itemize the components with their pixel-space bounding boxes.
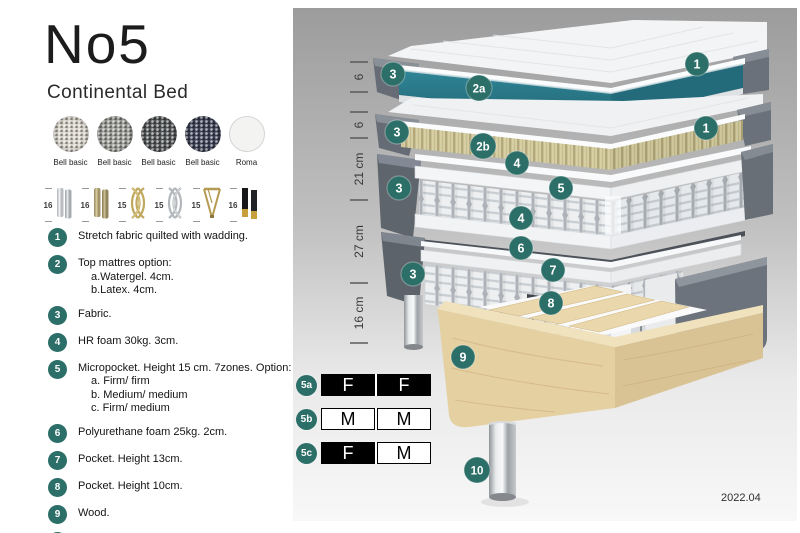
firmness-badge: 5b <box>296 409 317 430</box>
fabric-swatch-circle <box>229 116 265 152</box>
product-title: No5 <box>44 12 151 76</box>
leg-option: 15 <box>117 184 154 226</box>
fabric-swatch-label: Bell basicMCD32 <box>97 158 131 168</box>
legend-main-line: Micropocket. Height 15 cm. 7zones. Optio… <box>78 362 298 376</box>
fabric-swatch-circle <box>97 116 133 152</box>
firmness-row-5a: 5aFF <box>296 374 431 396</box>
firmness-badge: 5a <box>296 375 317 396</box>
callout-badge-1: 1 <box>694 116 718 140</box>
legend-number-badge: 8 <box>48 478 67 497</box>
fabric-swatches: Bell basicMCD36Bell basicMCD32Bell basic… <box>50 116 267 168</box>
product-subtitle: Continental Bed <box>47 82 188 104</box>
fabric-swatch-circle <box>53 116 89 152</box>
callout-badge-8: 8 <box>539 291 563 315</box>
legend-item-text: Pocket. Height 10cm. <box>78 480 298 497</box>
fabric-swatch: Bell basicMCD36 <box>50 116 91 168</box>
callout-badge-3: 3 <box>381 62 405 86</box>
callout-badge-4: 4 <box>509 206 533 230</box>
legend-main-line: Pocket. Height 13cm. <box>78 453 298 467</box>
legend-item: 3Fabric. <box>48 308 298 325</box>
leg-height-value: 16 <box>81 201 90 210</box>
svg-text:16 cm: 16 cm <box>352 297 366 330</box>
legend-item-text: Polyurethane foam 25kg. 2cm. <box>78 426 298 443</box>
callout-badge-1: 1 <box>685 52 709 76</box>
back-leg <box>404 295 423 350</box>
callout-badge-3: 3 <box>385 120 409 144</box>
firmness-cell: F <box>321 374 375 396</box>
legend-item: 7Pocket. Height 13cm. <box>48 453 298 470</box>
callout-badge-5: 5 <box>549 176 573 200</box>
legend-item: 9Wood. <box>48 507 298 524</box>
leg-option: 16 <box>228 184 265 226</box>
callout-badge-2b: 2b <box>470 133 496 159</box>
fabric-swatch-circle <box>141 116 177 152</box>
diagram-panel: 6621 cm27 cm16 cm 32a132b145346738910 5a… <box>293 8 797 521</box>
leg-option: 15 <box>191 184 228 226</box>
bed-infographic: No5 Continental Bed Bell basicMCD36Bell … <box>0 0 800 533</box>
legend-sub-line: a. Firm/ firm <box>78 375 298 389</box>
svg-text:2b: 2b <box>476 141 489 153</box>
legend-number-badge: 9 <box>48 505 67 524</box>
legend-main-line: HR foam 30kg. 3cm. <box>78 335 298 349</box>
firmness-row-5c: 5cFM <box>296 442 431 464</box>
svg-text:4: 4 <box>514 156 521 170</box>
callout-badge-3: 3 <box>401 262 425 286</box>
legend-item-text: Pocket. Height 13cm. <box>78 453 298 470</box>
svg-text:3: 3 <box>390 67 397 81</box>
firmness-cells: FM <box>321 442 431 464</box>
legend-sub-line: b.Latex. 4cm. <box>78 284 298 298</box>
svg-text:7: 7 <box>550 263 557 277</box>
firmness-cell: M <box>321 408 375 430</box>
fabric-swatch-label: Bell basicMCD36 <box>53 158 87 168</box>
firmness-cells: MM <box>321 408 431 430</box>
gold-hairpin-leg-icon <box>202 187 222 224</box>
legend-item: 4HR foam 30kg. 3cm. <box>48 335 298 352</box>
legend-number-badge: 3 <box>48 306 67 325</box>
firmness-badge: 5c <box>296 443 317 464</box>
svg-text:6: 6 <box>518 241 525 255</box>
leg-height-value: 15 <box>192 201 201 210</box>
svg-text:27 cm: 27 cm <box>352 225 366 258</box>
callout-badge-7: 7 <box>541 258 565 282</box>
legend-item-text: Micropocket. Height 15 cm. 7zones. Optio… <box>78 362 298 416</box>
firmness-cell: F <box>377 374 431 396</box>
legend-item: 8Pocket. Height 10cm. <box>48 480 298 497</box>
legend-number-badge: 6 <box>48 424 67 443</box>
callout-badge-2a: 2a <box>466 75 492 101</box>
leg-height-ruler: 16 <box>43 188 53 222</box>
leg-height-value: 16 <box>44 201 53 210</box>
leg-height-ruler: 16 <box>80 188 90 222</box>
firmness-cell: M <box>377 408 431 430</box>
fabric-swatch: Bell basicMCD43 <box>138 116 179 168</box>
svg-text:8: 8 <box>548 296 555 310</box>
svg-text:4: 4 <box>518 211 525 225</box>
legend-number-badge: 1 <box>48 228 67 247</box>
measurement-ruler: 6621 cm27 cm16 cm <box>350 62 368 343</box>
leg-height-ruler: 15 <box>117 188 127 222</box>
svg-text:3: 3 <box>410 267 417 281</box>
leg-height-value: 15 <box>118 201 127 210</box>
legend-main-line: Top mattres option: <box>78 257 298 271</box>
leg-height-ruler: 16 <box>228 188 238 222</box>
legend-number-badge: 4 <box>48 333 67 352</box>
svg-text:2a: 2a <box>473 83 486 95</box>
callout-badge-4: 4 <box>505 151 529 175</box>
svg-text:3: 3 <box>396 181 403 195</box>
version-label: 2022.04 <box>721 492 761 504</box>
leg-option: 16 <box>80 184 117 226</box>
callout-badge-3: 3 <box>387 176 411 200</box>
firmness-cell: M <box>377 442 431 464</box>
legend-list: 1Stretch fabric quilted with wadding.2To… <box>48 230 298 533</box>
fabric-swatch: Bell basicMCD74 <box>182 116 223 168</box>
legend-item-text: Top mattres option:a.Watergel. 4cm.b.Lat… <box>78 257 298 298</box>
legend-item-text: Fabric. <box>78 308 298 325</box>
chrome-cylinder-leg-icon <box>54 187 74 224</box>
fabric-swatch: Romastretch fabric <box>226 116 267 168</box>
leg-height-ruler: 15 <box>191 188 201 222</box>
firmness-row-5b: 5bMM <box>296 408 431 430</box>
legend-number-badge: 7 <box>48 451 67 470</box>
gold-twisted-leg-icon <box>128 187 148 224</box>
callout-badge-9: 9 <box>451 345 475 369</box>
legend-sub-line: b. Medium/ medium <box>78 389 298 403</box>
svg-text:6: 6 <box>352 121 366 128</box>
svg-text:21 cm: 21 cm <box>352 153 366 186</box>
callout-badge-10: 10 <box>464 457 490 483</box>
legend-sub-line: a.Watergel. 4cm. <box>78 271 298 285</box>
legend-main-line: Polyurethane foam 25kg. 2cm. <box>78 426 298 440</box>
legend-item: 6Polyurethane foam 25kg. 2cm. <box>48 426 298 443</box>
fabric-swatch: Bell basicMCD32 <box>94 116 135 168</box>
legend-item: 2Top mattres option:a.Watergel. 4cm.b.La… <box>48 257 298 298</box>
svg-text:1: 1 <box>703 121 710 135</box>
legend-item: 5Micropocket. Height 15 cm. 7zones. Opti… <box>48 362 298 416</box>
svg-text:5: 5 <box>558 181 565 195</box>
svg-text:10: 10 <box>471 465 484 477</box>
svg-text:1: 1 <box>694 57 701 71</box>
fabric-swatch-label: Bell basicMCD74 <box>185 158 219 168</box>
leg-option: 15 <box>154 184 191 226</box>
svg-text:6: 6 <box>352 73 366 80</box>
legend-item-text: Stretch fabric quilted with wadding. <box>78 230 298 247</box>
brass-cylinder-leg-icon <box>91 187 111 224</box>
leg-height-ruler: 15 <box>154 188 164 222</box>
legend-item-text: Wood. <box>78 507 298 524</box>
leg-option: 16 <box>43 184 80 226</box>
callout-badge-6: 6 <box>509 236 533 260</box>
firmness-cell: F <box>321 442 375 464</box>
legend-item-text: HR foam 30kg. 3cm. <box>78 335 298 352</box>
legend-item: 1Stretch fabric quilted with wadding. <box>48 230 298 247</box>
leg-height-value: 16 <box>229 201 238 210</box>
fabric-swatch-label: Romastretch fabric <box>236 158 257 168</box>
legend-sub-line: c. Firm/ medium <box>78 402 298 416</box>
svg-text:9: 9 <box>460 350 467 364</box>
fabric-swatch-label: Bell basicMCD43 <box>141 158 175 168</box>
fabric-swatch-circle <box>185 116 221 152</box>
black-gold-tip-leg-icon <box>239 187 259 224</box>
svg-text:3: 3 <box>394 125 401 139</box>
leg-height-value: 15 <box>155 201 164 210</box>
legend-number-badge: 5 <box>48 360 67 379</box>
legend-main-line: Wood. <box>78 507 298 521</box>
legend-main-line: Pocket. Height 10cm. <box>78 480 298 494</box>
leg-options: 161615151516 <box>43 184 265 226</box>
legend-main-line: Fabric. <box>78 308 298 322</box>
firmness-cells: FF <box>321 374 431 396</box>
legend-main-line: Stretch fabric quilted with wadding. <box>78 230 298 244</box>
legend-number-badge: 2 <box>48 255 67 274</box>
silver-twisted-leg-icon <box>165 187 185 224</box>
